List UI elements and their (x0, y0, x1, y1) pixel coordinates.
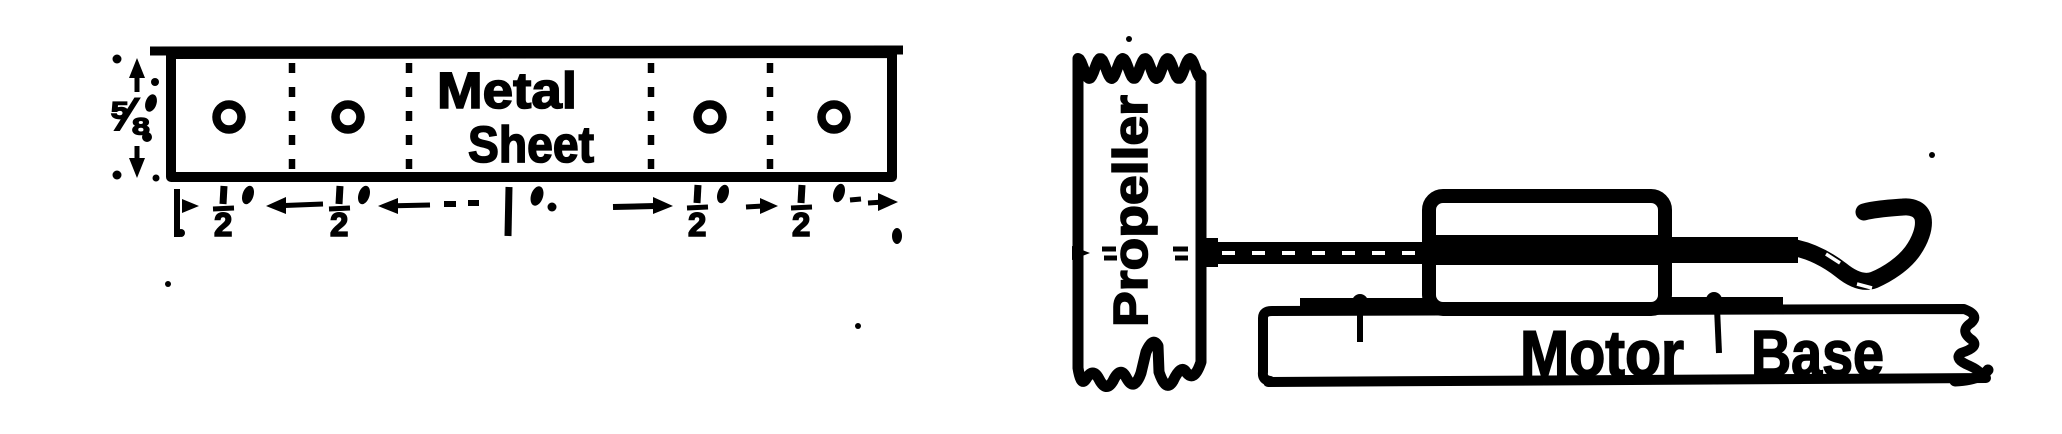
svg-text:Sheet: Sheet (468, 116, 594, 173)
svg-text:Metal: Metal (437, 62, 577, 119)
svg-text:Motor: Motor (1520, 317, 1684, 390)
svg-text:⅝: ⅝ (108, 88, 149, 140)
svg-text:2: 2 (688, 206, 706, 243)
svg-text:Base: Base (1751, 317, 1884, 390)
svg-text:Propeller: Propeller (1105, 95, 1158, 327)
svg-text:2: 2 (214, 206, 232, 243)
svg-text:2: 2 (792, 206, 810, 243)
svg-text:2: 2 (330, 206, 348, 243)
